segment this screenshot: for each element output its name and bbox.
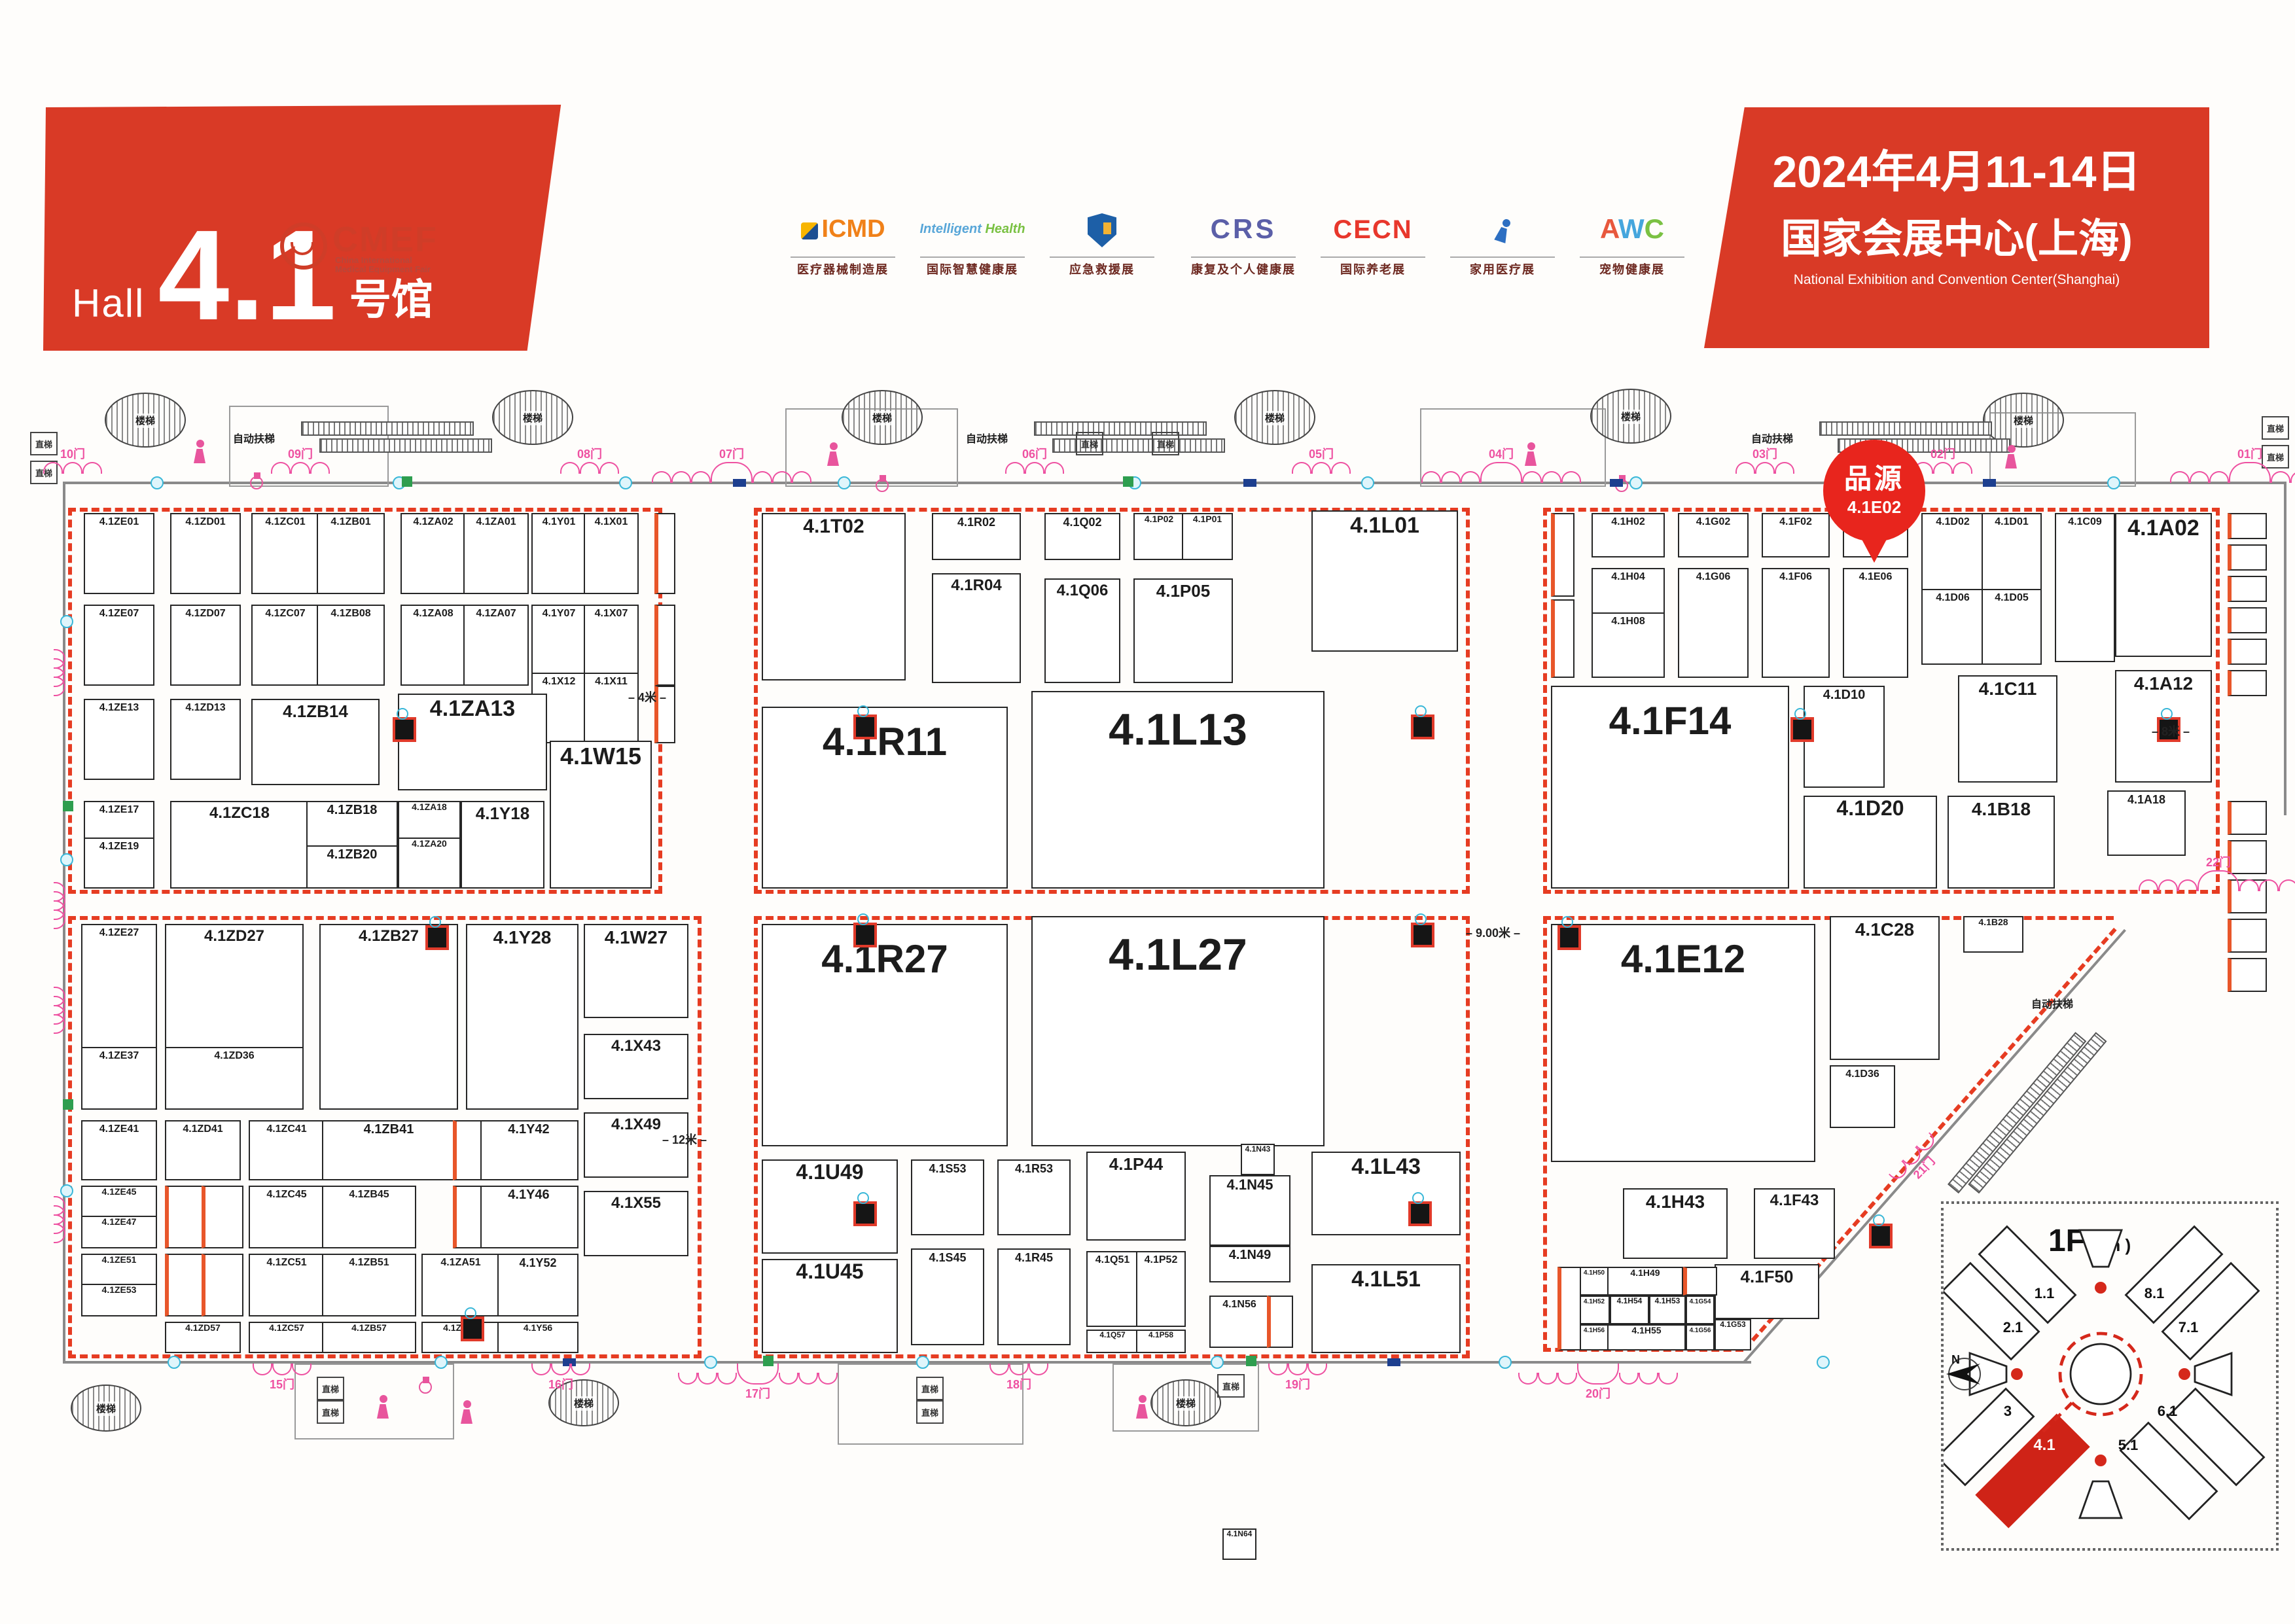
- booth-4.1ZD57: 4.1ZD57: [165, 1322, 241, 1353]
- logo-caption: 宠物健康展: [1567, 260, 1698, 277]
- exhibitor-booth-id: 4.1E02: [1823, 497, 1925, 517]
- info-dot: [838, 476, 851, 489]
- gate-arcs-icon: [989, 1364, 1048, 1375]
- booth-4.1ZB57: 4.1ZB57: [322, 1322, 416, 1353]
- runner-icon: [1493, 217, 1512, 244]
- booth-label: 4.1H53: [1650, 1297, 1684, 1306]
- logo-divider: [1450, 256, 1555, 258]
- hydrant-marker: [1790, 717, 1814, 742]
- info-dot: [60, 1184, 73, 1197]
- booth-label: 4.1ZA51: [423, 1255, 499, 1268]
- booth-label: 4.1Q51: [1088, 1252, 1137, 1265]
- gate-label: 07门: [652, 445, 811, 462]
- booth-label: 4.1ZC41: [250, 1121, 323, 1135]
- booth-4.1D10: 4.1D10: [1804, 686, 1885, 788]
- booth-4.1ZE17: 4.1ZE17: [84, 801, 154, 840]
- booth-4.1Y46: 4.1Y46: [479, 1186, 578, 1248]
- toilet-person-icon: [377, 1395, 389, 1420]
- booth-label: 4.1ZC07: [253, 606, 318, 619]
- wheelchair-icon: [416, 1377, 432, 1392]
- booth-4.1X55: 4.1X55: [584, 1191, 688, 1256]
- booth-label: 4.1P44: [1088, 1153, 1184, 1174]
- gate-label: 16门: [531, 1375, 590, 1392]
- info-dot: [916, 1356, 929, 1369]
- booth-label: 4.1X55: [585, 1192, 687, 1212]
- booth-4.1P44: 4.1P44: [1086, 1152, 1186, 1241]
- logo-caption: 国际养老展: [1308, 260, 1438, 277]
- gate-08门: 08门: [560, 445, 619, 474]
- minimap-hall-label: 5.1: [2118, 1437, 2139, 1453]
- booth-label: 4.1ZE51: [82, 1255, 156, 1265]
- booth-label: 4.1G56: [1687, 1326, 1713, 1335]
- door-chip: [1983, 479, 1996, 487]
- booth-sliver: [654, 513, 675, 594]
- booth-4.1H04: 4.1H04: [1592, 568, 1665, 615]
- gate-20门: 20门: [1518, 1364, 1678, 1402]
- booth-4.1ZC51: 4.1ZC51: [249, 1254, 325, 1316]
- booth-label: 4.1ZA08: [402, 606, 465, 619]
- minimap-hall-label: 2.1: [2003, 1319, 2023, 1335]
- booth-label: 4.1H50: [1580, 1268, 1609, 1277]
- booth-label: 4.1Y56: [499, 1323, 577, 1333]
- booth-4.1Y28: 4.1Y28: [466, 924, 578, 1110]
- booth-4.1A18: 4.1A18: [2107, 790, 2186, 856]
- runner-icon: [1437, 207, 1568, 254]
- gate-label: 04门: [1421, 445, 1581, 462]
- gate-arcs-icon: [1292, 462, 1351, 474]
- booth-label: 4.1D10: [1805, 687, 1883, 703]
- hydrant-marker: [1557, 925, 1581, 950]
- booth-label: 4.1X07: [585, 606, 637, 619]
- gate-label: 01门: [2170, 445, 2295, 462]
- booth-4.1R04: 4.1R04: [932, 573, 1021, 683]
- booth-label: 4.1ZB20: [308, 847, 397, 862]
- booth-4.1ZC41: 4.1ZC41: [249, 1120, 325, 1180]
- dimension-label: – 12米 –: [662, 1131, 707, 1148]
- booth-sliver: [2228, 576, 2267, 602]
- booth-label: 4.1ZD41: [166, 1121, 240, 1135]
- exit-marker: [1123, 476, 1133, 487]
- booth-label: 4.1ZE53: [82, 1285, 156, 1296]
- booth-4.1P02: 4.1P02: [1133, 513, 1184, 560]
- gate-03门: 03门: [1735, 445, 1794, 474]
- booth-label: 4.1D36: [1831, 1067, 1894, 1080]
- booth-label: 4.1S53: [912, 1161, 983, 1175]
- booth-4.1ZA20: 4.1ZA20: [398, 838, 461, 889]
- booth-label: 4.1L27: [1033, 917, 1323, 981]
- gate-arcs-icon: [43, 462, 102, 474]
- shield-icon: [1088, 213, 1116, 247]
- stairs: 楼梯: [1150, 1379, 1221, 1426]
- stairs: 楼梯: [105, 393, 186, 448]
- elevator: 直梯: [317, 1400, 344, 1424]
- logo-crs: CRS康复及个人健康展: [1178, 207, 1309, 277]
- gate-label: 03门: [1735, 445, 1794, 462]
- booth-label: 4.1ZD07: [171, 606, 240, 619]
- booth-label: 4.1L13: [1033, 692, 1323, 756]
- info-dot: [1361, 476, 1374, 489]
- booth-label: 4.1F06: [1763, 569, 1828, 582]
- booth-4.1L27: 4.1L27: [1031, 916, 1325, 1146]
- booth-label: 4.1S45: [912, 1250, 983, 1264]
- booth-sliver: [1267, 1296, 1293, 1348]
- booth-label: 4.1L51: [1313, 1265, 1459, 1293]
- booth-4.1S45: 4.1S45: [911, 1248, 984, 1345]
- north-label: N: [1951, 1353, 1960, 1366]
- booth-label: 4.1U49: [763, 1161, 897, 1186]
- booth-label: 4.1W27: [585, 925, 687, 947]
- booth-label: 4.1ZB45: [323, 1187, 415, 1200]
- booth-label: 4.1ZB41: [323, 1121, 454, 1137]
- booth-4.1ZA51: 4.1ZA51: [421, 1254, 500, 1316]
- booth-4.1ZB08: 4.1ZB08: [317, 605, 385, 686]
- logo-divider: [1050, 256, 1154, 258]
- door-chip: [1243, 479, 1256, 487]
- booth-label: 4.1ZB51: [323, 1255, 415, 1268]
- booth-label: 4.1D05: [1983, 590, 2040, 603]
- booth-label: 4.1G06: [1679, 569, 1747, 582]
- booth-4.1G54: 4.1G54: [1686, 1296, 1715, 1324]
- booth-sliver: [2228, 958, 2267, 992]
- hydrant-marker: [1411, 715, 1434, 739]
- booth-4.1Y07: 4.1Y07: [531, 605, 586, 675]
- booth-4.1D01: 4.1D01: [1982, 513, 2042, 591]
- booth-label: 4.1H54: [1611, 1297, 1648, 1306]
- elevator: 直梯: [1152, 432, 1179, 455]
- booth-4.1ZB27: 4.1ZB27: [319, 924, 458, 1110]
- cmef-emblem-icon: [280, 222, 327, 270]
- booth-4.1N56: 4.1N56: [1209, 1296, 1270, 1348]
- booth-4.1H55: 4.1H55: [1607, 1324, 1686, 1350]
- info-dot: [60, 615, 73, 628]
- logo-divider: [920, 256, 1025, 258]
- side-entrance-curtain: [50, 887, 69, 968]
- booth-4.1ZC18: 4.1ZC18: [170, 801, 309, 889]
- minimap-hall-label: 7.1: [2179, 1319, 2199, 1335]
- hydrant-marker: [1869, 1224, 1893, 1248]
- booth-4.1ZD07: 4.1ZD07: [170, 605, 241, 686]
- booth-4.1H52: 4.1H52: [1578, 1296, 1610, 1324]
- gate-arcs-icon: [1518, 1364, 1678, 1385]
- booth-label: 4.1A18: [2108, 792, 2184, 806]
- booth-4.1G56: 4.1G56: [1686, 1324, 1715, 1350]
- logo-icmd: ICMD医疗器械制造展: [777, 207, 908, 277]
- booth-label: 4.1H43: [1624, 1190, 1726, 1212]
- booth-label: 4.1G53: [1716, 1320, 1750, 1330]
- venue-en: National Exhibition and Convention Cente…: [1704, 272, 2209, 288]
- booth-4.1E06: 4.1E06: [1843, 568, 1908, 678]
- booth-4.1F06: 4.1F06: [1762, 568, 1830, 678]
- booth-4.1X43: 4.1X43: [584, 1034, 688, 1099]
- booth-4.1Y18: 4.1Y18: [461, 801, 544, 889]
- logo-caption: 应急救援展: [1037, 260, 1167, 277]
- gate-19门: 19门: [1268, 1364, 1327, 1392]
- booth-4.1H02: 4.1H02: [1592, 513, 1665, 557]
- logo-cecn: CECN国际养老展: [1308, 207, 1438, 277]
- elevator: 直梯: [2262, 416, 2289, 440]
- booth-4.1C11: 4.1C11: [1958, 675, 2057, 783]
- booth-label: 4.1E12: [1552, 925, 1814, 983]
- hydrant-marker: [853, 923, 877, 947]
- booth-4.1ZE53: 4.1ZE53: [81, 1284, 157, 1316]
- gate-label: 06门: [1005, 445, 1064, 462]
- hydrant-marker: [1411, 923, 1434, 947]
- booth-label: 4.1ZD01: [171, 514, 240, 527]
- booth-label: 4.1ZE41: [82, 1121, 156, 1135]
- booth-4.1P58: 4.1P58: [1136, 1330, 1186, 1353]
- booth-label: 4.1Y42: [480, 1121, 577, 1137]
- shield-icon: [1037, 207, 1167, 254]
- booth-4.1G06: 4.1G06: [1678, 568, 1749, 678]
- booth-4.1Y01: 4.1Y01: [531, 513, 586, 594]
- booth-label: 4.1Q02: [1046, 514, 1119, 529]
- booth-label: 4.1ZE19: [85, 839, 153, 852]
- booth-label: 4.1G54: [1687, 1297, 1713, 1306]
- booth-label: 4.1ZE13: [85, 700, 153, 713]
- booth-label: 4.1T02: [763, 514, 904, 538]
- booth-label: 4.1Q57: [1088, 1331, 1137, 1340]
- booth-label: 4.1X12: [533, 674, 585, 687]
- logo-divider: [791, 256, 895, 258]
- booth-4.1Y42: 4.1Y42: [479, 1120, 578, 1180]
- hydrant-marker: [461, 1316, 484, 1341]
- booth-4.1ZA07: 4.1ZA07: [463, 605, 529, 686]
- booth-4.1R53: 4.1R53: [997, 1159, 1071, 1235]
- booth-4.1ZE41: 4.1ZE41: [81, 1120, 157, 1180]
- hydrant-marker: [425, 925, 449, 950]
- gate-09门: 09门: [271, 445, 330, 474]
- dimension-label: – 4米 –: [628, 688, 666, 705]
- info-dot: [619, 476, 632, 489]
- booth-label: 4.1ZE01: [85, 514, 153, 527]
- hall-banner: Hall 4.1 号馆: [43, 105, 606, 351]
- booth-label: 4.1F50: [1716, 1265, 1818, 1286]
- booth-4.1ZE01: 4.1ZE01: [84, 513, 154, 594]
- booth-4.1E12: 4.1E12: [1551, 924, 1815, 1162]
- info-dot: [60, 853, 73, 866]
- booth-sliver: [2228, 607, 2267, 633]
- booth-4.1ZD36: 4.1ZD36: [165, 1047, 304, 1110]
- booth-sliver: [453, 1120, 482, 1180]
- booth-sliver: [2228, 670, 2267, 696]
- booth-sliver: [165, 1254, 207, 1316]
- booth-label: 4.1H55: [1609, 1326, 1684, 1336]
- booth-label: 4.1B28: [1965, 917, 2022, 928]
- stairs: 楼梯: [1590, 389, 1671, 444]
- booth-4.1X07: 4.1X07: [584, 605, 639, 675]
- booth-sliver: [1551, 599, 1574, 678]
- logo-runner: 家用医疗展: [1437, 207, 1568, 277]
- booth-sliver: [2228, 801, 2267, 835]
- gate-07门: 07门: [652, 445, 811, 483]
- gate-05门: 05门: [1292, 445, 1351, 474]
- stairs: 楼梯: [71, 1385, 141, 1432]
- gate-label: 05门: [1292, 445, 1351, 462]
- exit-marker: [63, 801, 73, 811]
- booth-4.1ZE07: 4.1ZE07: [84, 605, 154, 686]
- booth-label: 4.1ZA13: [399, 695, 546, 722]
- booth-4.1Q02: 4.1Q02: [1044, 513, 1120, 560]
- minimap-hall-label: 1.1: [2035, 1285, 2055, 1301]
- booth-4.1F02: 4.1F02: [1762, 513, 1830, 557]
- booth-4.1G02: 4.1G02: [1678, 513, 1749, 557]
- booth-4.1C28: 4.1C28: [1830, 916, 1940, 1060]
- booth-4.1ZD01: 4.1ZD01: [170, 513, 241, 594]
- booth-4.1ZE27: 4.1ZE27: [81, 924, 157, 1050]
- booth-4.1H49: 4.1H49: [1607, 1267, 1683, 1296]
- booth-label: 4.1ZE37: [82, 1048, 156, 1061]
- stairs: 楼梯: [492, 390, 573, 445]
- hydrant-marker: [393, 717, 416, 742]
- gate-arcs-icon: [271, 462, 330, 474]
- booth-label: 4.1ZE47: [82, 1217, 156, 1227]
- booth-label: 4.1N56: [1211, 1297, 1268, 1310]
- booth-4.1ZC07: 4.1ZC07: [251, 605, 319, 686]
- booth-4.1ZB01: 4.1ZB01: [317, 513, 385, 594]
- elevator: 直梯: [1076, 432, 1103, 455]
- booth-label: 4.1H08: [1593, 614, 1663, 627]
- exit-marker: [402, 476, 412, 487]
- booth-label: 4.1H49: [1609, 1268, 1682, 1279]
- wheelchair-icon: [247, 472, 263, 488]
- booth-label: 4.1P05: [1135, 580, 1232, 601]
- booth-label: 4.1D02: [1923, 514, 1983, 527]
- dimension-label: – 9.00米 –: [1466, 924, 1520, 941]
- booth-4.1H43: 4.1H43: [1623, 1188, 1728, 1259]
- booth-label: 4.1L01: [1313, 512, 1457, 539]
- logo-divider: [1580, 256, 1684, 258]
- booth-4.1B28: 4.1B28: [1963, 916, 2023, 953]
- booth-label: 4.1ZB08: [318, 606, 383, 619]
- booth-4.1F43: 4.1F43: [1754, 1188, 1835, 1259]
- gate-label: 20门: [1518, 1385, 1678, 1402]
- booth-label: 4.1P01: [1183, 514, 1232, 525]
- event-dates: 2024年4月11-14日: [1704, 136, 2209, 200]
- booth-sliver: [2228, 544, 2267, 571]
- booth-4.1ZD27: 4.1ZD27: [165, 924, 304, 1050]
- booth-label: 4.1ZB18: [308, 802, 397, 818]
- gate-04门: 04门: [1421, 445, 1581, 483]
- booth-4.1ZB45: 4.1ZB45: [322, 1186, 416, 1248]
- booth-4.1H53: 4.1H53: [1649, 1296, 1686, 1324]
- booth-4.1H08: 4.1H08: [1592, 612, 1665, 678]
- info-dot: [1629, 476, 1643, 489]
- booth-4.1H54: 4.1H54: [1610, 1296, 1649, 1324]
- booth-4.1U49: 4.1U49: [762, 1159, 898, 1254]
- booth-label: 4.1N45: [1211, 1176, 1289, 1193]
- elevator: 直梯: [916, 1377, 944, 1400]
- booth-4.1Q51: 4.1Q51: [1086, 1251, 1139, 1327]
- gate-label: 15门: [253, 1375, 311, 1392]
- booth-label: 4.1ZA20: [399, 839, 459, 849]
- booth-4.1S53: 4.1S53: [911, 1159, 984, 1235]
- booth-label: 4.1ZE07: [85, 606, 153, 619]
- booth-label: 4.1R04: [933, 574, 1020, 594]
- info-dot: [2107, 476, 2120, 489]
- booth-label: 4.1Y01: [533, 514, 585, 527]
- booth-label: 4.1ZA07: [465, 606, 527, 619]
- booth-label: 4.1ZB01: [318, 514, 383, 527]
- minimap-title: 1F: [2048, 1224, 2085, 1258]
- exhibitor-location-pin: 品源 4.1E02: [1823, 440, 1925, 542]
- booth-4.1T02: 4.1T02: [762, 513, 906, 680]
- booth-label: 4.1P58: [1137, 1331, 1184, 1340]
- toilet-person-icon: [827, 442, 839, 467]
- info-dot: [168, 1356, 181, 1369]
- booth-4.1B18: 4.1B18: [1948, 796, 2055, 889]
- logo-divider: [1321, 256, 1425, 258]
- booth-label: 4.1C11: [1959, 677, 2056, 699]
- icmd-icon: ICMD: [777, 207, 908, 254]
- elevator: 直梯: [916, 1400, 944, 1424]
- booth-label: 4.1H56: [1580, 1326, 1609, 1335]
- gate-16门: 16门: [531, 1364, 590, 1392]
- booth-4.1ZC01: 4.1ZC01: [251, 513, 319, 594]
- booth-label: 4.1R11: [763, 708, 1006, 766]
- door-chip: [1387, 1358, 1400, 1366]
- gate-label: 17门: [678, 1385, 838, 1402]
- gate-22门: 22门: [2139, 853, 2295, 891]
- booth-4.1L51: 4.1L51: [1311, 1264, 1461, 1353]
- crs-icon: CRS: [1178, 207, 1309, 254]
- booth-4.1N49: 4.1N49: [1209, 1246, 1290, 1282]
- booth-label: 4.1ZC01: [253, 514, 318, 527]
- booth-label: 4.1D01: [1983, 514, 2040, 527]
- booth-label: 4.1H02: [1593, 514, 1663, 527]
- booth-label: 4.1P52: [1137, 1252, 1184, 1265]
- booth-sliver: [453, 1186, 482, 1248]
- booth-label: 4.1ZD36: [166, 1048, 302, 1061]
- booth-4.1ZD41: 4.1ZD41: [165, 1120, 241, 1180]
- booth-label: 4.1F02: [1763, 514, 1828, 527]
- hydrant-marker: [853, 715, 877, 739]
- booth-label: 4.1N49: [1211, 1247, 1289, 1263]
- booth-4.1ZA02: 4.1ZA02: [400, 513, 466, 594]
- booth-label: 4.1L43: [1313, 1153, 1459, 1180]
- booth-4.1X11: 4.1X11: [584, 673, 639, 743]
- gate-18门: 18门: [989, 1364, 1048, 1392]
- booth-label: 4.1ZD57: [166, 1323, 240, 1333]
- booth-4.1D06: 4.1D06: [1921, 589, 1984, 665]
- gate-label: 19门: [1268, 1375, 1327, 1392]
- booth-4.1ZB18: 4.1ZB18: [306, 801, 398, 848]
- hydrant-marker: [853, 1201, 877, 1226]
- booth-4.1Q57: 4.1Q57: [1086, 1330, 1139, 1353]
- gate-arcs-icon: [1005, 462, 1064, 474]
- cmef-name: CMEF: [332, 220, 438, 260]
- booth-4.1N45: 4.1N45: [1209, 1175, 1290, 1246]
- hydrant-marker: [1408, 1201, 1432, 1226]
- gate-label: 09门: [271, 445, 330, 462]
- booth-4.1H56: 4.1H56: [1578, 1324, 1610, 1350]
- stairs: 楼梯: [842, 390, 923, 445]
- booth-label: 4.1D06: [1923, 590, 1983, 603]
- booth-label: 4.1X01: [585, 514, 637, 527]
- info-dot: [1817, 1356, 1830, 1369]
- toilet-person-icon: [2005, 445, 2017, 470]
- gate-label: 08门: [560, 445, 619, 462]
- booth-4.1W15: 4.1W15: [550, 741, 652, 889]
- booth-4.1R27: 4.1R27: [762, 924, 1008, 1146]
- cmef-subtitle: China InternationalMedical Equipment Fai…: [335, 256, 431, 276]
- toilet-person-icon: [1136, 1395, 1148, 1420]
- booth-4.1D36: 4.1D36: [1830, 1065, 1895, 1128]
- stairs: 楼梯: [1234, 390, 1315, 445]
- info-dot: [1211, 1356, 1224, 1369]
- booth-4.1ZE45: 4.1ZE45: [81, 1186, 157, 1218]
- booth-label: 4.1A12: [2116, 671, 2211, 694]
- minimap-svg: 1F(0m )1.12.18.17.134.15.16.1N: [1944, 1204, 2276, 1548]
